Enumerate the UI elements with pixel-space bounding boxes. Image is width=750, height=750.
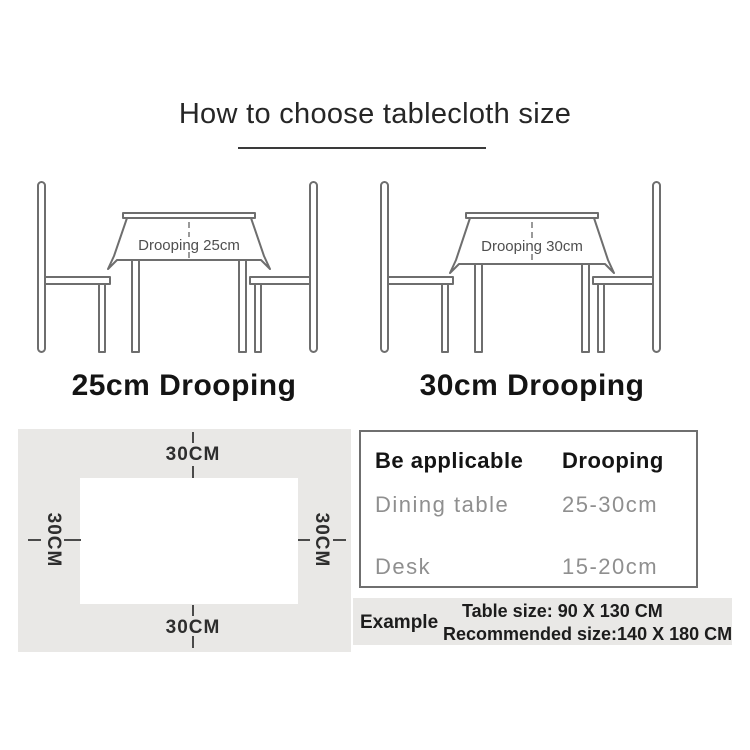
example-table-size: Table size: 90 X 130 CM: [462, 600, 732, 623]
tick-bottom-inner: [192, 605, 194, 616]
tick-top-inner: [192, 466, 194, 478]
page-title: How to choose tablecloth size: [0, 95, 750, 133]
example-recommended-size: Recommended size:140 X 180 CM: [443, 623, 732, 646]
tick-left-inner: [64, 539, 81, 541]
spec-row-dining-table-name: Dining table: [375, 492, 509, 518]
tick-right-inner: [298, 539, 310, 541]
tick-right-outer: [333, 539, 346, 541]
right-chair-icon: [593, 182, 660, 352]
spec-row-dining-table-value: 25-30cm: [562, 492, 658, 518]
cloth-drooping-label: Drooping 25cm: [138, 237, 240, 254]
margin-label-right: 30CM: [310, 500, 332, 580]
spec-header-drooping: Drooping: [562, 448, 664, 474]
caption-25cm-drooping: 25cm Drooping: [34, 368, 334, 404]
example-strip: Example Table size: 90 X 130 CM Recommen…: [353, 598, 732, 645]
cloth-drooping-label: Drooping 30cm: [481, 238, 583, 255]
tick-left-outer: [28, 539, 41, 541]
spec-row-desk-name: Desk: [375, 554, 431, 580]
margin-label-left: 30CM: [42, 500, 64, 580]
tablecloth-size-guide: How to choose tablecloth size: [0, 0, 750, 750]
title-underline: [238, 147, 486, 149]
example-lines: Table size: 90 X 130 CM Recommended size…: [353, 600, 732, 646]
caption-30cm-drooping: 30cm Drooping: [382, 368, 682, 404]
illustration-25cm-drooping: Drooping 25cm: [24, 178, 354, 358]
tablecloth-top-view: [80, 478, 298, 604]
left-chair-icon: [38, 182, 110, 352]
size-diagram-panel: 30CM 30CM 30CM 30CM: [18, 429, 351, 652]
spec-row-desk-value: 15-20cm: [562, 554, 658, 580]
right-chair-icon: [250, 182, 317, 352]
drooping-spec-table: Be applicable Drooping Dining table 25-3…: [359, 430, 698, 588]
margin-label-top: 30CM: [153, 444, 233, 466]
illustration-30cm-drooping: Drooping 30cm: [367, 178, 697, 358]
spec-header-applicable: Be applicable: [375, 448, 523, 474]
tick-top-outer: [192, 432, 194, 443]
left-chair-icon: [381, 182, 453, 352]
tick-bottom-outer: [192, 636, 194, 648]
